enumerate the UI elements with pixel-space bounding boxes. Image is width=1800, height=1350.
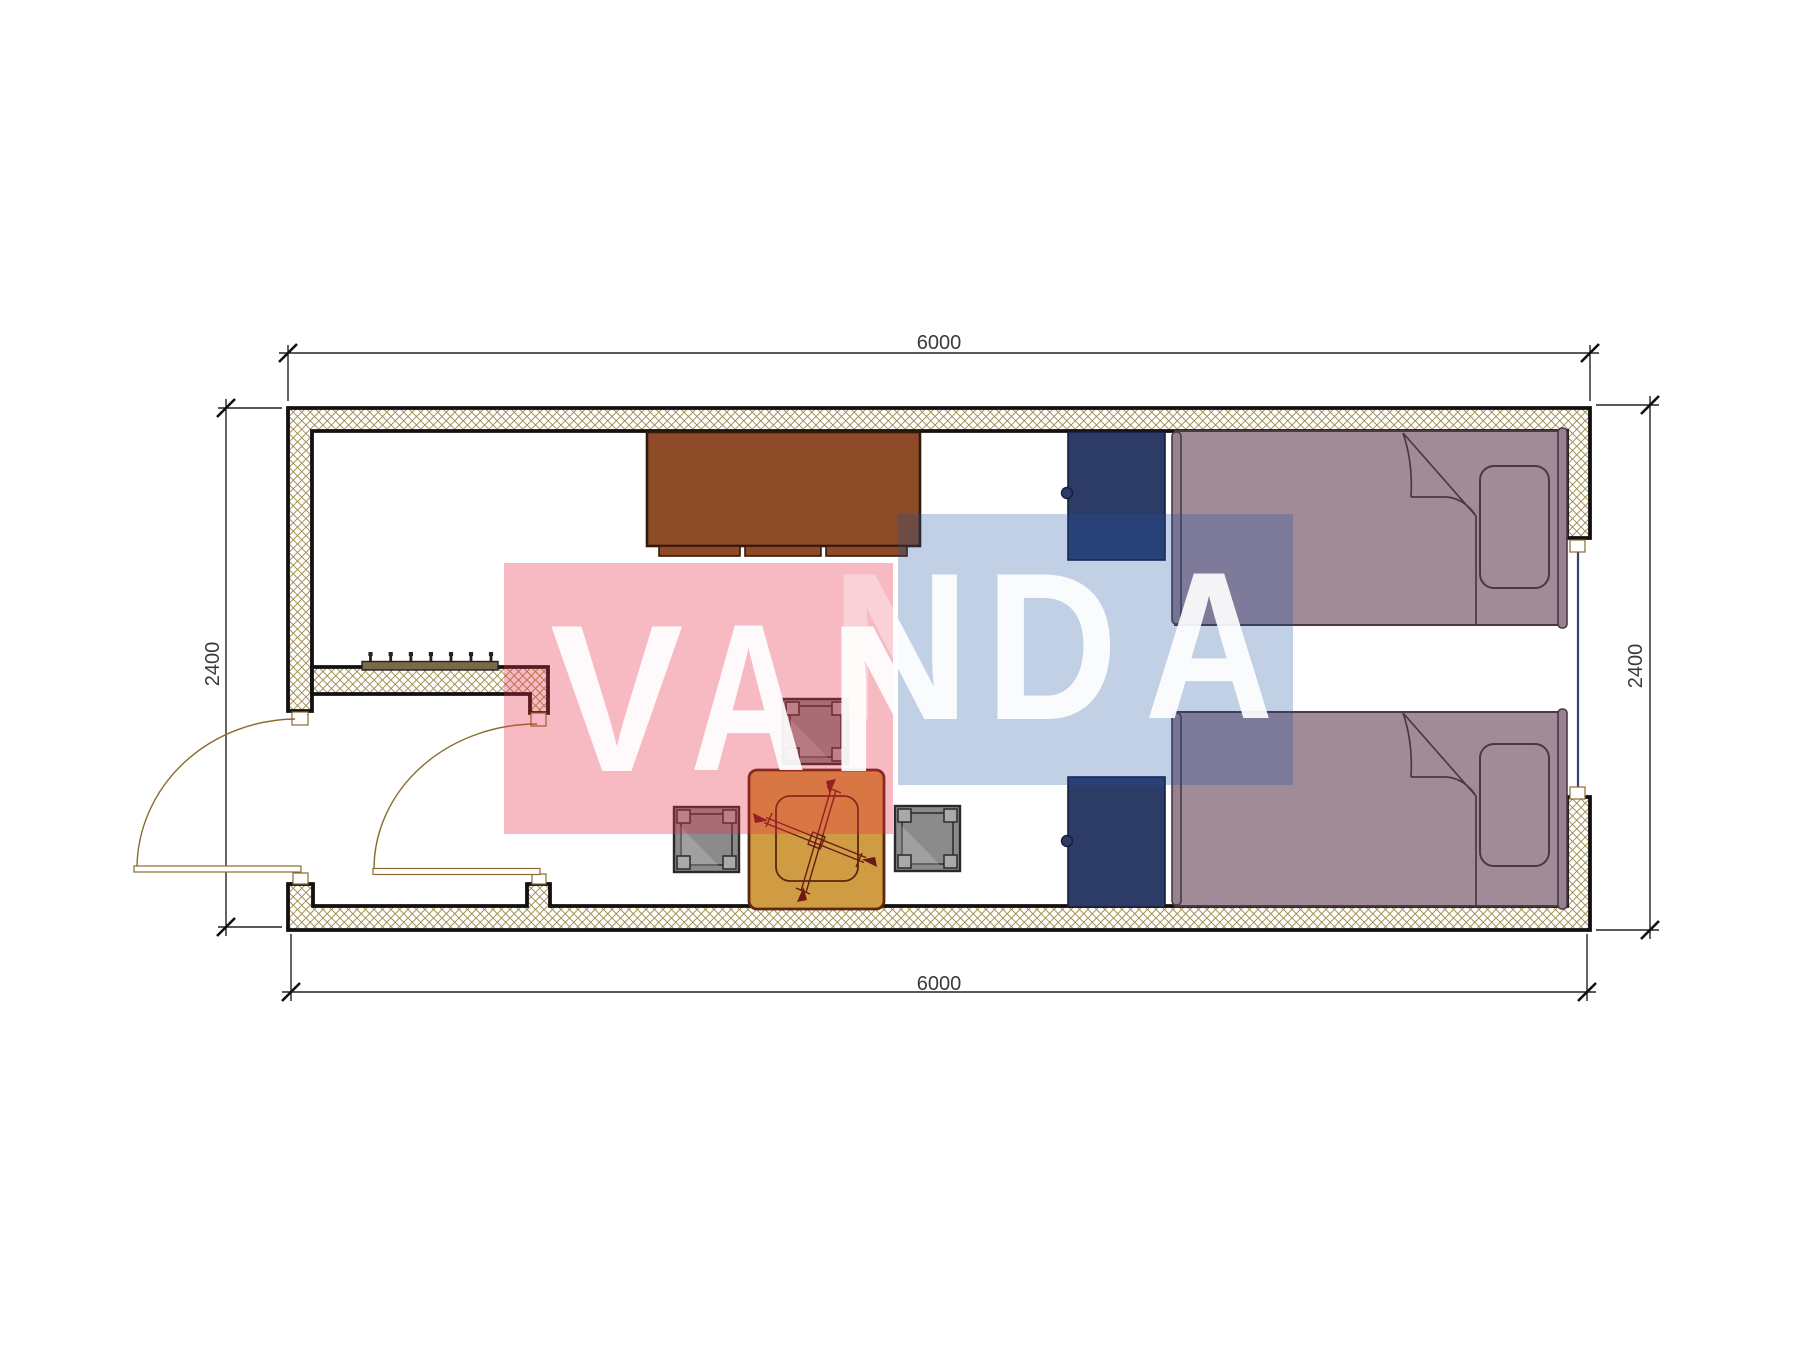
svg-text:A: A [690,579,807,814]
svg-text:6000: 6000 [917,973,962,995]
svg-text:2400: 2400 [202,642,224,687]
svg-text:A: A [1145,529,1274,763]
svg-text:D: D [985,528,1118,763]
svg-text:2400: 2400 [1625,644,1647,689]
svg-text:V: V [550,582,683,817]
svg-text:6000: 6000 [917,332,962,354]
